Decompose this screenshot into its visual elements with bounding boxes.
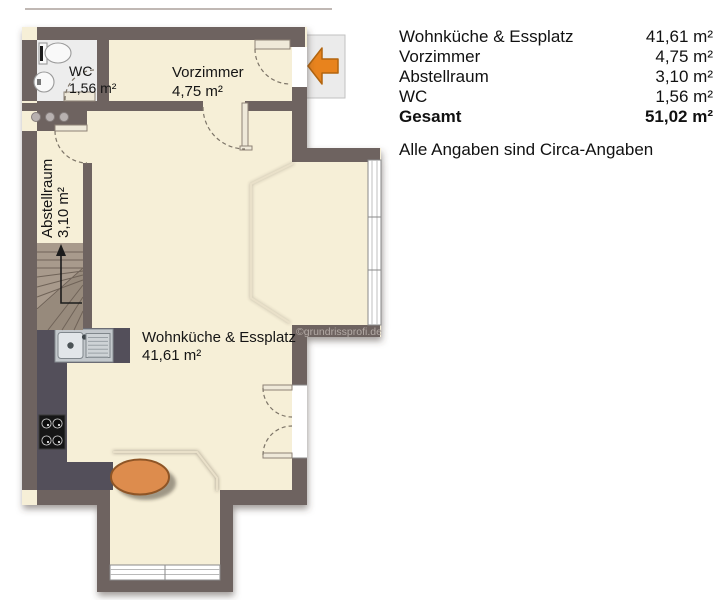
tap-icon xyxy=(37,79,41,85)
burner-dot xyxy=(47,441,49,443)
door-leaf xyxy=(263,385,292,390)
legend-room-name: Vorzimmer xyxy=(399,47,480,67)
window-frame xyxy=(368,160,381,325)
legend-row-total: Gesamt 51,02 m² xyxy=(399,107,713,127)
legend-room-area: 4,75 m² xyxy=(655,47,713,67)
burner-icon xyxy=(53,436,62,445)
legend-room-name: Abstellraum xyxy=(399,67,489,87)
stove xyxy=(39,415,65,449)
burner-dot xyxy=(58,424,60,426)
room-name: Abstellraum xyxy=(40,159,56,238)
entrance xyxy=(306,35,345,98)
pipe-icon xyxy=(60,113,69,122)
door-leaf xyxy=(242,103,248,149)
toilet xyxy=(39,43,71,64)
building xyxy=(22,27,381,592)
kitchen-sink xyxy=(55,329,113,362)
alcove-window xyxy=(110,565,220,580)
room-label-abstellraum: Abstellraum 3,10 m² xyxy=(40,159,72,238)
watermark: ©grundrissprofi.de xyxy=(296,326,382,338)
room-area: 41,61 m² xyxy=(142,347,296,365)
door-leaf xyxy=(263,453,292,458)
legend-room-area: 51,02 m² xyxy=(645,107,713,127)
utility-shaft-pipes xyxy=(32,113,69,122)
stairs xyxy=(37,243,83,330)
legend-row: Wohnküche & Essplatz 41,61 m² xyxy=(399,27,713,47)
legend-row: Vorzimmer 4,75 m² xyxy=(399,47,713,67)
legend-room-name: Gesamt xyxy=(399,107,461,127)
room-label-vorzimmer: Vorzimmer 4,75 m² xyxy=(172,63,244,101)
burner-icon xyxy=(42,419,51,428)
room-area: 3,10 m² xyxy=(56,159,72,238)
pipe-icon xyxy=(46,113,55,122)
bay-window xyxy=(368,160,381,325)
burner-dot xyxy=(47,424,49,426)
flush-plate-icon xyxy=(40,46,43,61)
burner-dot xyxy=(58,441,60,443)
room-label-wohnkueche: Wohnküche & Essplatz 41,61 m² xyxy=(142,329,296,365)
legend-room-area: 41,61 m² xyxy=(646,27,713,47)
legend-note: Alle Angaben sind Circa-Angaben xyxy=(399,140,713,160)
room-area: 4,75 m² xyxy=(172,82,244,101)
legend-row: WC 1,56 m² xyxy=(399,87,713,107)
room-name: WC xyxy=(69,63,116,80)
toilet-bowl xyxy=(45,43,71,63)
room-label-wc: WC 1,56 m² xyxy=(69,63,116,97)
door-leaf xyxy=(255,40,290,49)
burner-icon xyxy=(42,436,51,445)
door-opening xyxy=(292,47,307,87)
legend-row: Abstellraum 3,10 m² xyxy=(399,67,713,87)
room-area: 1,56 m² xyxy=(69,80,116,97)
legend-room-area: 3,10 m² xyxy=(655,67,713,87)
room-name: Wohnküche & Essplatz xyxy=(142,329,296,347)
area-legend: Wohnküche & Essplatz 41,61 m² Vorzimmer … xyxy=(399,27,713,160)
pipe-icon xyxy=(32,113,41,122)
burner-icon xyxy=(53,419,62,428)
wc-sink xyxy=(34,72,54,92)
door-leaf-cap xyxy=(240,146,252,150)
floorplan-page: WC 1,56 m² Vorzimmer 4,75 m² Abstellraum… xyxy=(0,0,726,600)
door-opening xyxy=(292,385,307,458)
legend-room-area: 1,56 m² xyxy=(655,87,713,107)
legend-room-name: WC xyxy=(399,87,427,107)
room-name: Vorzimmer xyxy=(172,63,244,82)
sink-drain-icon xyxy=(67,342,73,348)
door-leaf xyxy=(55,125,87,131)
dining-table xyxy=(111,460,169,495)
legend-room-name: Wohnküche & Essplatz xyxy=(399,27,574,47)
